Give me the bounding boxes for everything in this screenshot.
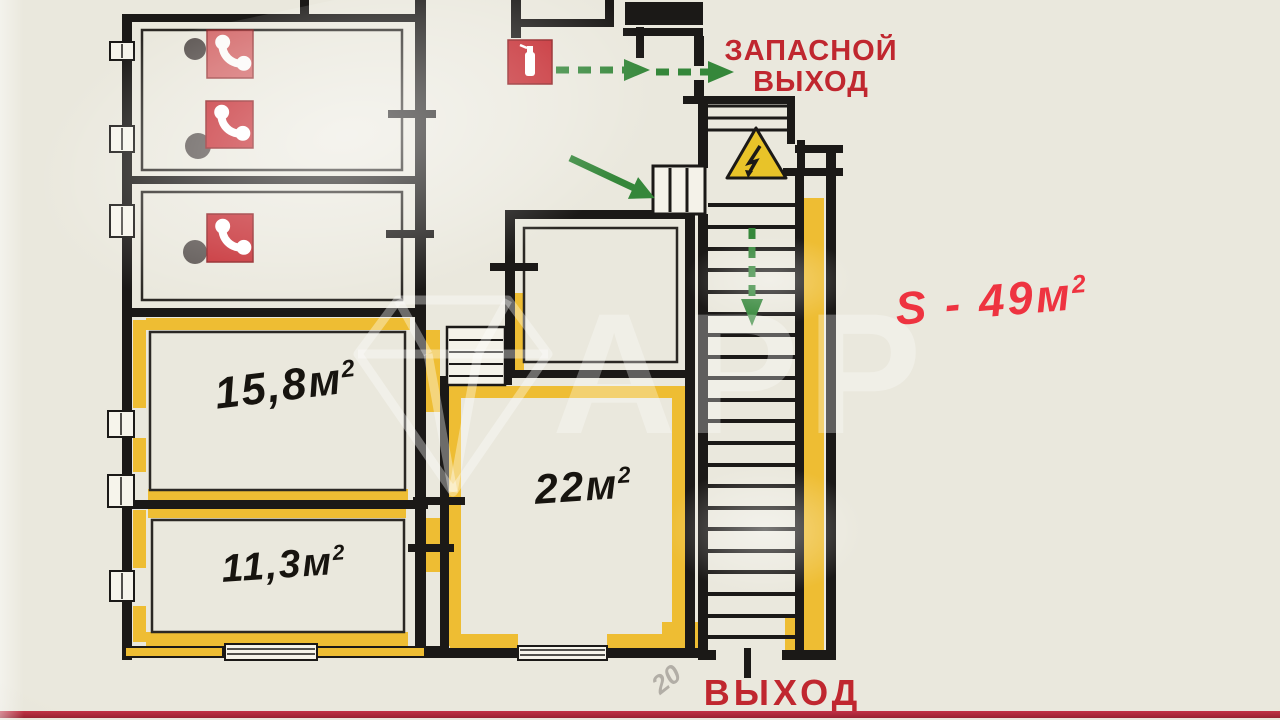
emergency-exit-line2: ВЫХОД [722,67,900,98]
watermark-diamond-icon [348,292,558,502]
room-area-label-22: 22м2 [533,459,635,514]
entry-steps [653,166,705,214]
watermark-text: APP [552,288,930,460]
exit-label: ВЫХОД [690,674,875,713]
fire-phone-icon [206,101,253,148]
fire-phone-icon [207,214,254,262]
fire-phone-icon [207,30,254,78]
room-area-label-11-3: 11,3м2 [220,539,349,592]
fire-extinguisher-icon [508,40,552,84]
electrical-hazard-icon [727,128,786,178]
emergency-exit-line1: ЗАПАСНОЙ [722,36,900,67]
upper-stair-lines [703,106,787,130]
plan-red-border [0,711,1280,718]
solid-arrow-diagonal [570,158,634,188]
emergency-exit-label: ЗАПАСНОЙ ВЫХОД [722,36,900,99]
arrowhead [624,59,650,81]
evacuation-plan-photo: APP ЗАПАСНОЙ ВЫХОД ВЫХОД S - 49м2 15,8м2… [0,0,1280,720]
